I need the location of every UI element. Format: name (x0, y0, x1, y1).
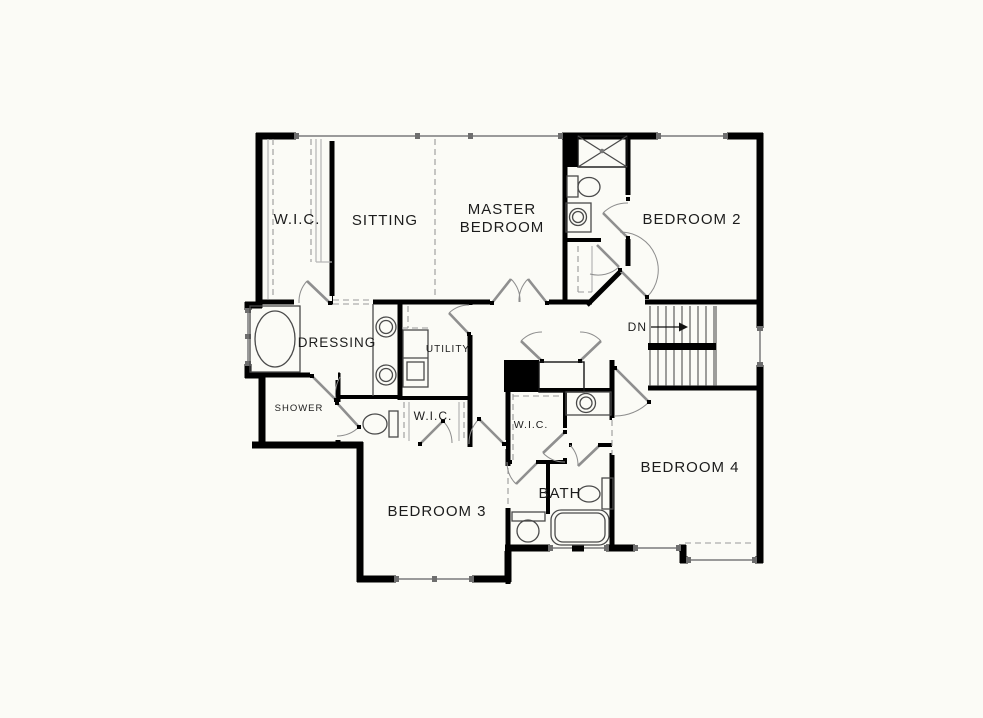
bath-toilet-fixture (512, 512, 545, 542)
room-label-wic-hall: W.I.C. (414, 409, 453, 423)
washer-dryer-fixture (403, 330, 428, 387)
dressing-double-sink-fixture (373, 304, 396, 396)
room-label-master-line1: MASTER (468, 201, 537, 218)
bed2-shower-stall-fixture (566, 136, 627, 167)
bath-tub-fixture (551, 510, 609, 545)
plumbing-chase (504, 360, 539, 392)
room-label-sitting: SITTING (352, 212, 418, 229)
stairs-arrow-head-icon (679, 323, 688, 332)
stairs (648, 306, 716, 386)
room-label-bath: BATH (539, 485, 582, 502)
room-label-wic-master: W.I.C. (274, 211, 321, 228)
room-label-utility: UTILITY (426, 344, 470, 355)
door-pivot-markers (310, 197, 651, 464)
room-label-shower: SHOWER (275, 403, 324, 414)
stair-landing-rail (648, 343, 716, 350)
vanity-sink-fixture (566, 392, 611, 415)
bath-sink-fixture (578, 478, 613, 509)
floor-plan-page: W.I.C. SITTING MASTER BEDROOM BEDROOM 2 … (0, 0, 983, 713)
room-label-dressing: DRESSING (298, 335, 377, 350)
floor-plan-canvas: W.I.C. SITTING MASTER BEDROOM BEDROOM 2 … (0, 0, 983, 713)
room-label-master-line2: BEDROOM (460, 219, 545, 236)
bed2-sink-fixture (566, 203, 591, 232)
hall-linen-cabinet (539, 362, 584, 392)
stairs-down-label: DN (628, 320, 647, 334)
bed2-toilet-fixture (567, 176, 600, 197)
room-label-wic-bed4: W.I.C. (514, 419, 549, 431)
room-label-bedroom3: BEDROOM 3 (387, 503, 486, 520)
dressing-tub-fixture (250, 306, 300, 372)
room-label-bedroom2: BEDROOM 2 (642, 211, 741, 228)
room-label-bedroom4: BEDROOM 4 (640, 459, 739, 476)
hall-toilet-fixture (363, 411, 398, 437)
